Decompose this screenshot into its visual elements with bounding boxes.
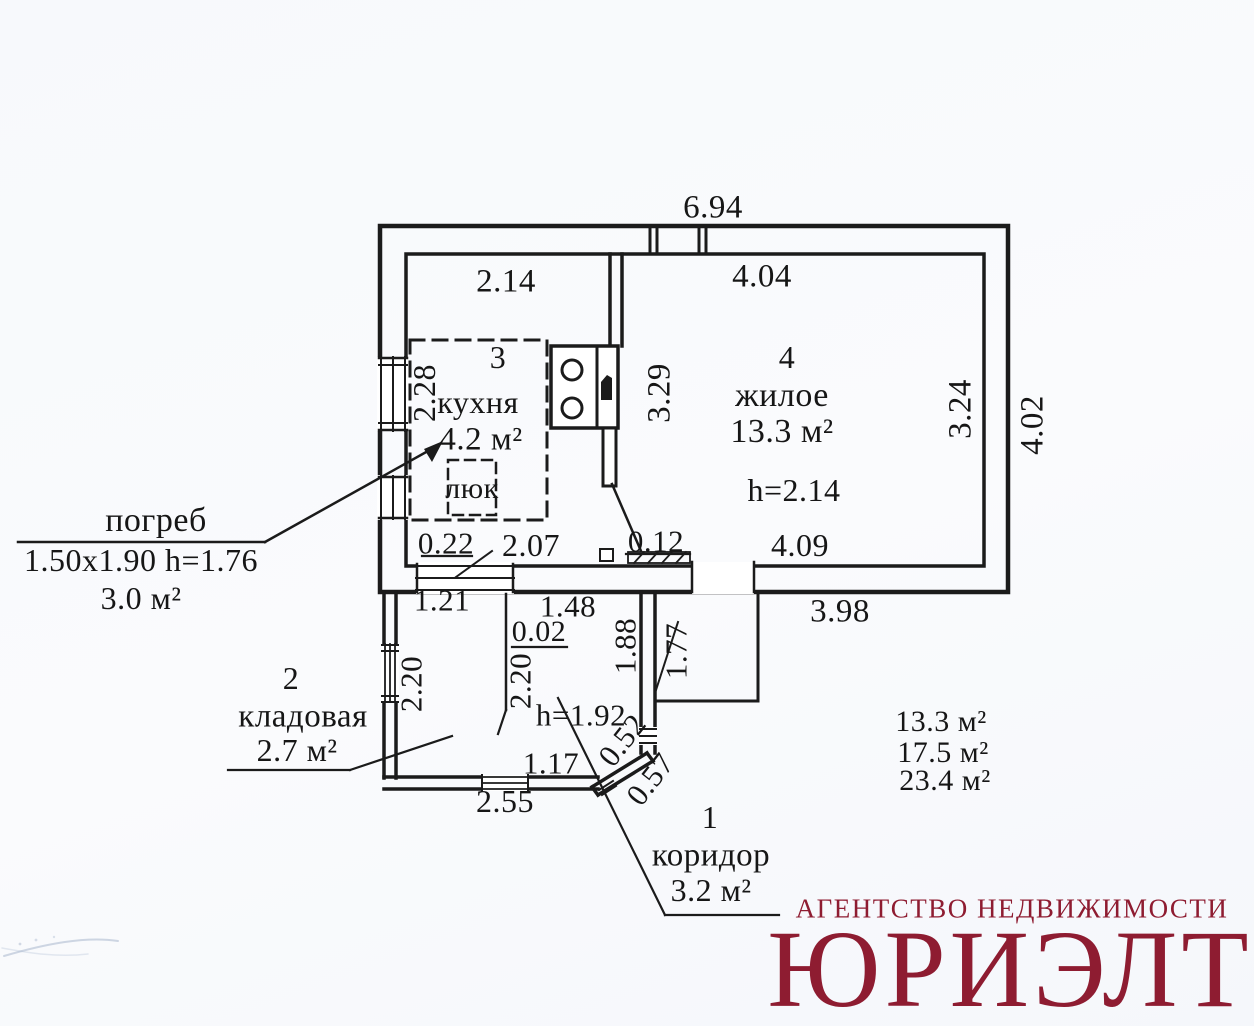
dim-partition-gap: 0.02 <box>512 617 567 647</box>
dim-living-bottom-outer: 3.98 <box>810 596 870 629</box>
room-storage-name: кладовая <box>238 701 367 734</box>
dim-partition-height: 3.29 <box>644 363 677 423</box>
dim-storage-top: 1.21 <box>414 585 470 616</box>
dim-living-top: 4.04 <box>732 261 792 294</box>
chimney-cell <box>650 226 706 254</box>
room-kitchen-area: 4.2 м² <box>439 424 522 457</box>
partition-end-cap <box>600 549 613 561</box>
dim-storage-mid: 2.20 <box>505 653 536 709</box>
room-living-number: 4 <box>779 341 796 373</box>
dim-storage-bottom-outer: 2.55 <box>476 785 534 817</box>
cellar-area: 3.0 м² <box>101 582 182 614</box>
dim-corridor-bottom: 1.17 <box>523 748 579 779</box>
dim-kitchen-bottom: 2.07 <box>502 529 560 561</box>
room-living-area: 13.3 м² <box>730 415 833 449</box>
dim-corridor-left: 1.88 <box>610 618 641 674</box>
room-corridor-number: 1 <box>702 801 719 833</box>
dim-kitchen-window: 0.22 <box>418 528 474 559</box>
dim-living-right: 3.24 <box>945 379 978 439</box>
dim-living-bottom: 4.09 <box>771 529 829 561</box>
stove-icon <box>551 346 618 428</box>
room-living-name: жилое <box>735 379 829 413</box>
dim-total-width: 6.94 <box>683 192 743 225</box>
room-storage-area: 2.7 м² <box>257 734 338 766</box>
dim-outer-right: 4.02 <box>1017 395 1050 455</box>
cellar-name: погреб <box>105 504 207 538</box>
kitchen-living-partition <box>610 254 622 346</box>
summary-living-area: 13.3 м² <box>895 707 986 737</box>
living-corridor-door <box>692 562 754 594</box>
room-corridor-name: коридор <box>652 840 770 873</box>
dim-corridor-right: 1.77 <box>661 623 692 679</box>
dim-cellar-side: 2.28 <box>408 364 440 422</box>
scanned-floor-plan-page: 6.94 2.14 4.04 2.28 3.29 3.24 4.02 0.22 … <box>0 0 1254 1026</box>
left-window-2 <box>377 475 409 520</box>
room-kitchen-number: 3 <box>490 341 507 373</box>
partition-stub <box>603 428 616 486</box>
left-window-1 <box>377 357 409 431</box>
dim-storage-left: 2.20 <box>396 656 427 712</box>
room-living-ceiling-height: h=2.14 <box>747 474 840 506</box>
summary-total-area: 23.4 м² <box>899 766 990 796</box>
dim-door-jamb: 0.12 <box>628 526 684 557</box>
room-storage-number: 2 <box>283 662 300 694</box>
dim-kitchen-top: 2.14 <box>476 266 536 299</box>
scan-smudge <box>2 936 118 956</box>
cellar-hatch-label: люк <box>445 474 498 504</box>
room-kitchen-name: кухня <box>437 386 518 418</box>
room-corridor-area: 3.2 м² <box>671 874 752 906</box>
cellar-size: 1.50x1.90 h=1.76 <box>24 544 258 576</box>
agency-logo-text: ЮРИЭЛТ <box>767 914 1252 1024</box>
